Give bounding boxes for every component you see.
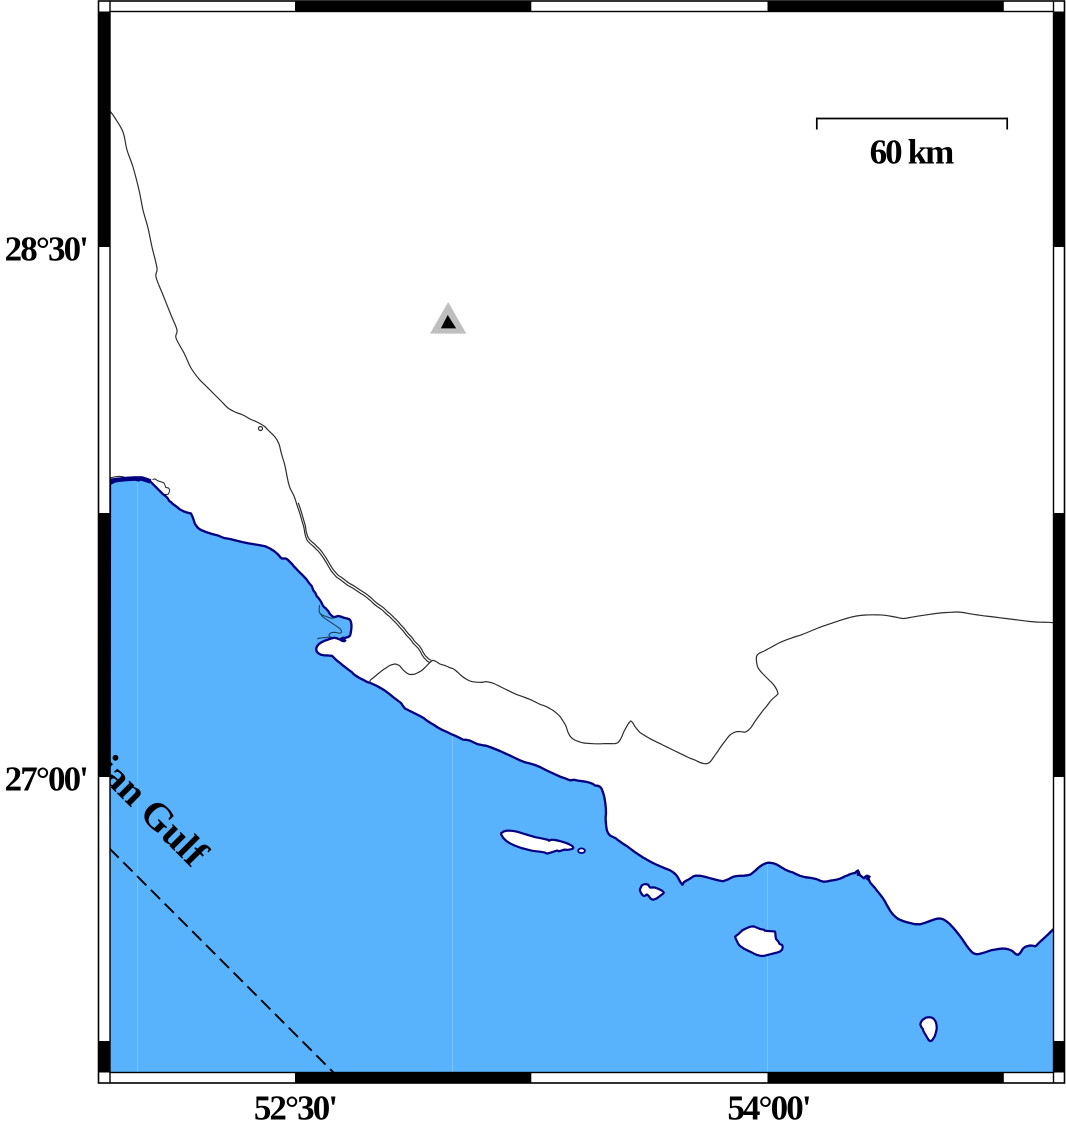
svg-text:28°30': 28°30' xyxy=(5,230,87,269)
svg-text:27°00': 27°00' xyxy=(5,760,87,799)
svg-text:60 km: 60 km xyxy=(870,133,955,172)
svg-text:54°00': 54°00' xyxy=(727,1089,809,1121)
svg-text:52°30': 52°30' xyxy=(254,1089,336,1121)
